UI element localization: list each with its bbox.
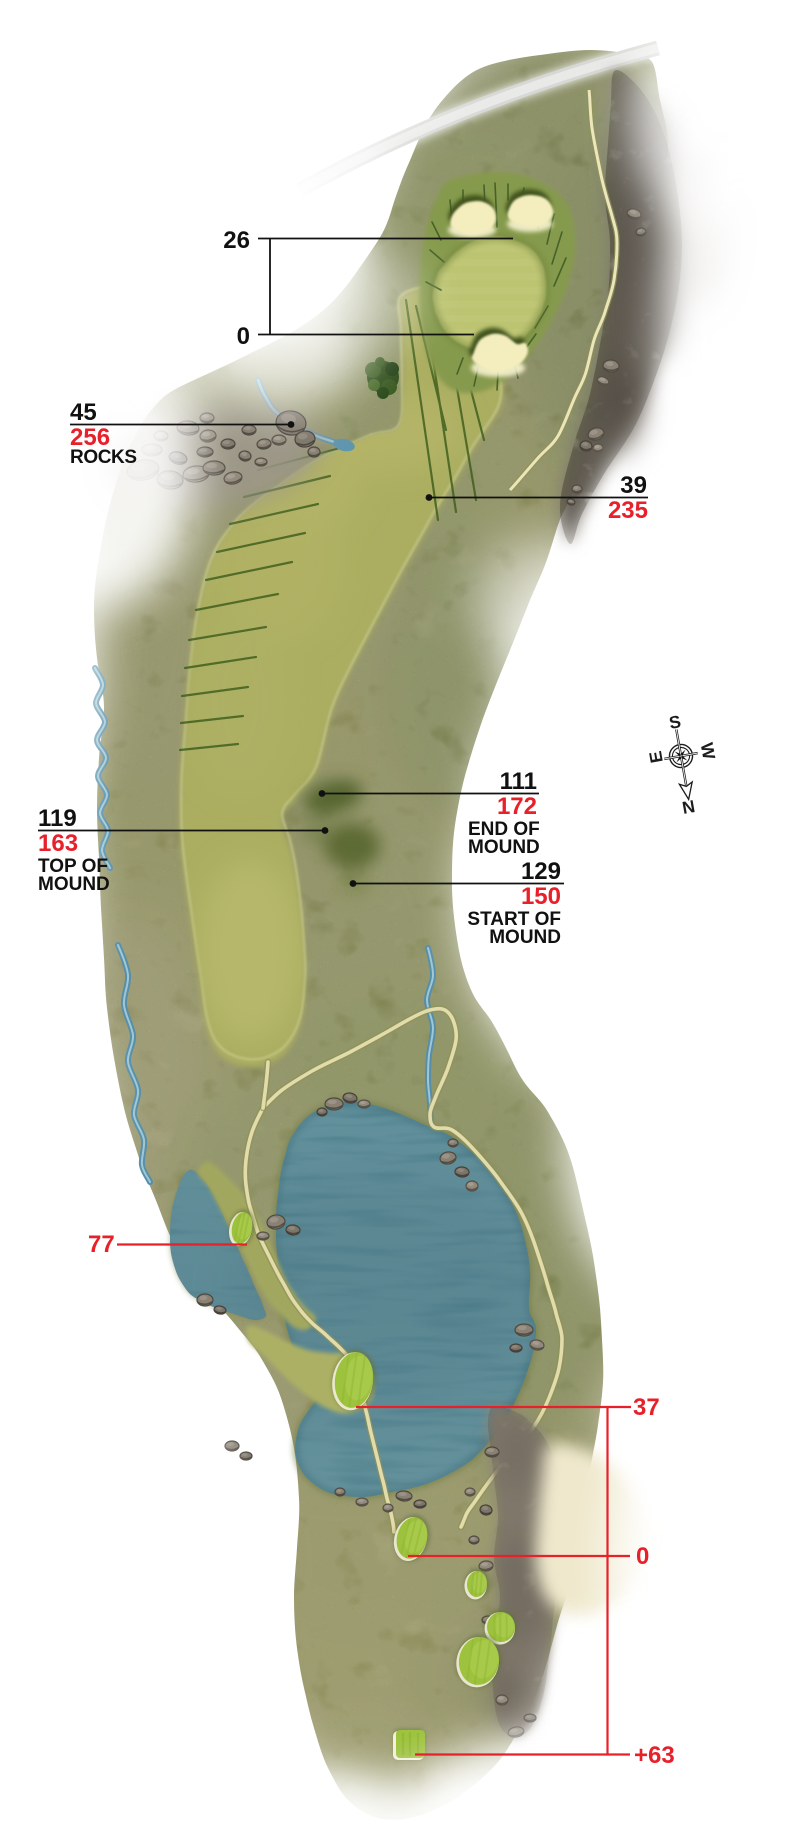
svg-text:37: 37 xyxy=(633,1394,660,1421)
svg-text:MOUND: MOUND xyxy=(468,837,540,858)
svg-text:235: 235 xyxy=(608,497,648,524)
svg-text:0: 0 xyxy=(636,1543,649,1570)
svg-text:+63: +63 xyxy=(634,1742,675,1769)
svg-text:119: 119 xyxy=(38,805,77,832)
svg-text:ROCKS: ROCKS xyxy=(70,447,137,468)
svg-text:26: 26 xyxy=(223,227,250,254)
svg-text:150: 150 xyxy=(521,883,561,910)
svg-text:MOUND: MOUND xyxy=(489,927,561,948)
svg-text:172: 172 xyxy=(497,793,537,820)
svg-text:163: 163 xyxy=(38,830,78,857)
svg-text:111: 111 xyxy=(500,768,537,795)
svg-text:39: 39 xyxy=(620,472,647,499)
svg-text:MOUND: MOUND xyxy=(38,874,110,895)
svg-text:0: 0 xyxy=(237,323,250,350)
svg-text:45: 45 xyxy=(70,399,97,426)
svg-text:129: 129 xyxy=(521,858,561,885)
svg-text:77: 77 xyxy=(88,1231,115,1258)
